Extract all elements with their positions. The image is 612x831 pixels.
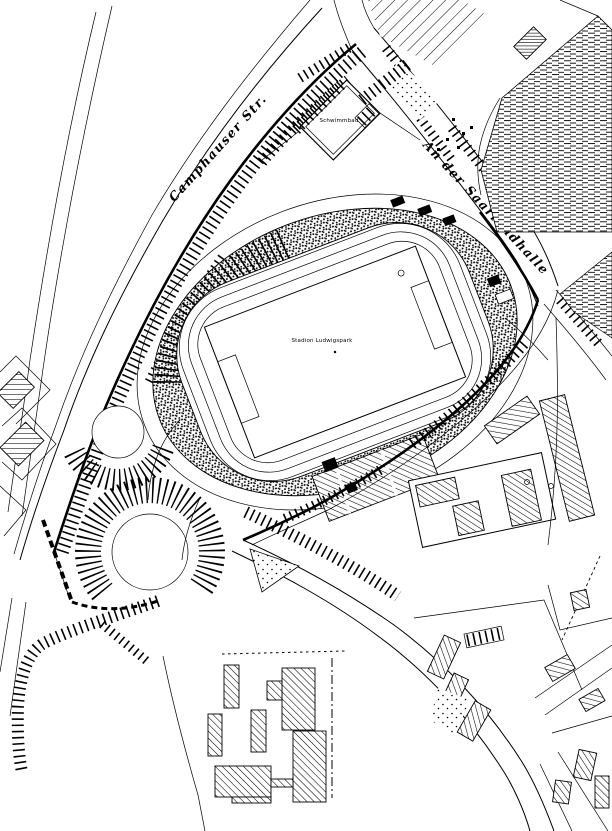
junction-island <box>250 549 299 592</box>
sparse-hatch-zone <box>368 0 488 68</box>
large-building-t <box>267 668 315 730</box>
building-label: Schwimmbad <box>319 118 358 124</box>
small-dark-building <box>514 27 547 60</box>
stadium-label: Stadion Ludwigspark <box>291 338 353 344</box>
hatched-hall-parcel <box>481 16 612 232</box>
south-buildings <box>163 651 346 831</box>
southeast-village <box>535 556 612 831</box>
site-plan-map: Camphauser Str. An der Saarlandhalle <box>0 0 612 831</box>
map-canvas: Camphauser Str. An der Saarlandhalle <box>0 0 612 831</box>
